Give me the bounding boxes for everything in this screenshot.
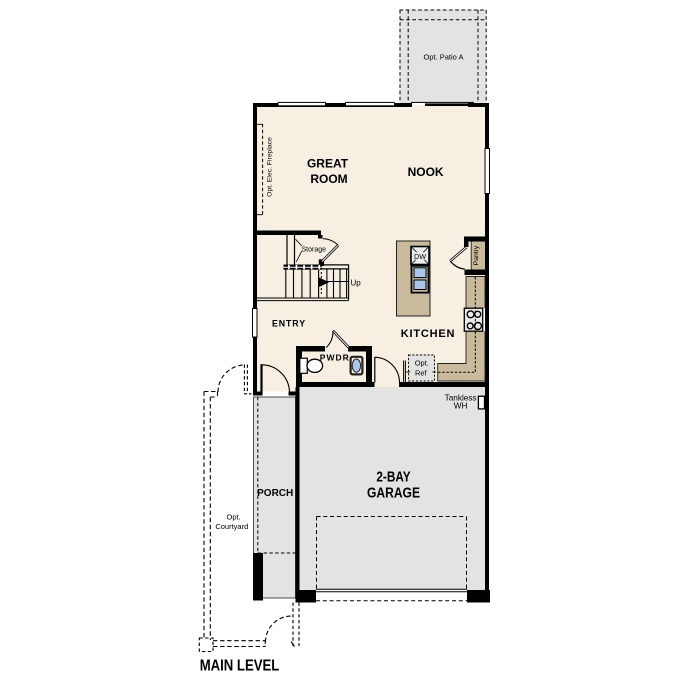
svg-text:Pantry: Pantry (473, 245, 480, 265)
svg-text:NOOK: NOOK (408, 165, 444, 179)
svg-text:Storage: Storage (302, 247, 327, 254)
svg-text:Opt.: Opt. (415, 359, 429, 368)
svg-text:Opt. Elec. Fireplace: Opt. Elec. Fireplace (267, 137, 274, 197)
svg-text:WH: WH (454, 401, 468, 410)
svg-text:ROOM: ROOM (310, 172, 347, 186)
svg-text:2-BAY: 2-BAY (376, 468, 410, 485)
svg-text:ENTRY: ENTRY (272, 318, 306, 328)
svg-text:Opt.: Opt. (227, 513, 241, 522)
svg-text:Ref: Ref (415, 369, 428, 378)
svg-text:GREAT: GREAT (307, 157, 349, 171)
svg-text:PORCH: PORCH (257, 488, 293, 499)
svg-text:PWDR: PWDR (320, 352, 350, 362)
svg-text:KITCHEN: KITCHEN (401, 328, 456, 340)
svg-text:MAIN LEVEL: MAIN LEVEL (200, 658, 280, 675)
svg-text:Up: Up (351, 279, 362, 288)
svg-text:GARAGE: GARAGE (367, 484, 420, 501)
svg-text:Opt. Patio A: Opt. Patio A (423, 53, 463, 62)
svg-text:Courtyard: Courtyard (215, 522, 248, 531)
svg-text:DW: DW (414, 252, 426, 261)
